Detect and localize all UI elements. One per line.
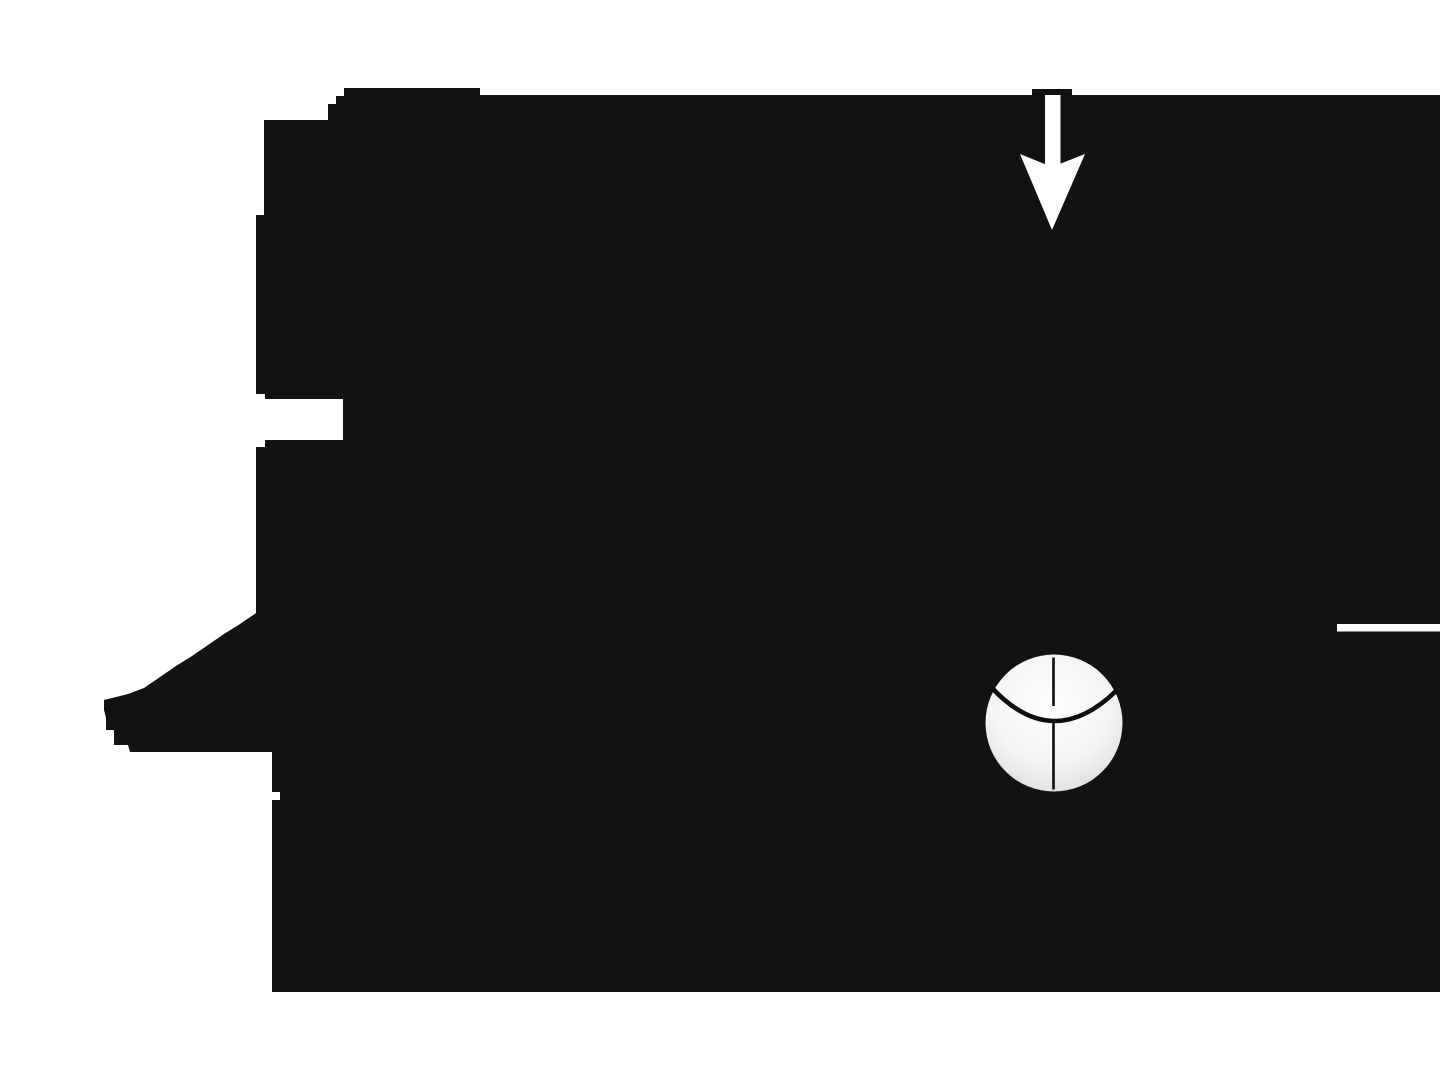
down-arrow-stem	[1045, 95, 1061, 167]
silhouette-mass	[104, 88, 1440, 992]
ball	[986, 655, 1123, 792]
diagram-svg	[0, 0, 1440, 1080]
figure-canvas	[0, 0, 1440, 1080]
down-arrow-cap	[1032, 89, 1072, 95]
right-edge-dash	[1337, 624, 1440, 632]
